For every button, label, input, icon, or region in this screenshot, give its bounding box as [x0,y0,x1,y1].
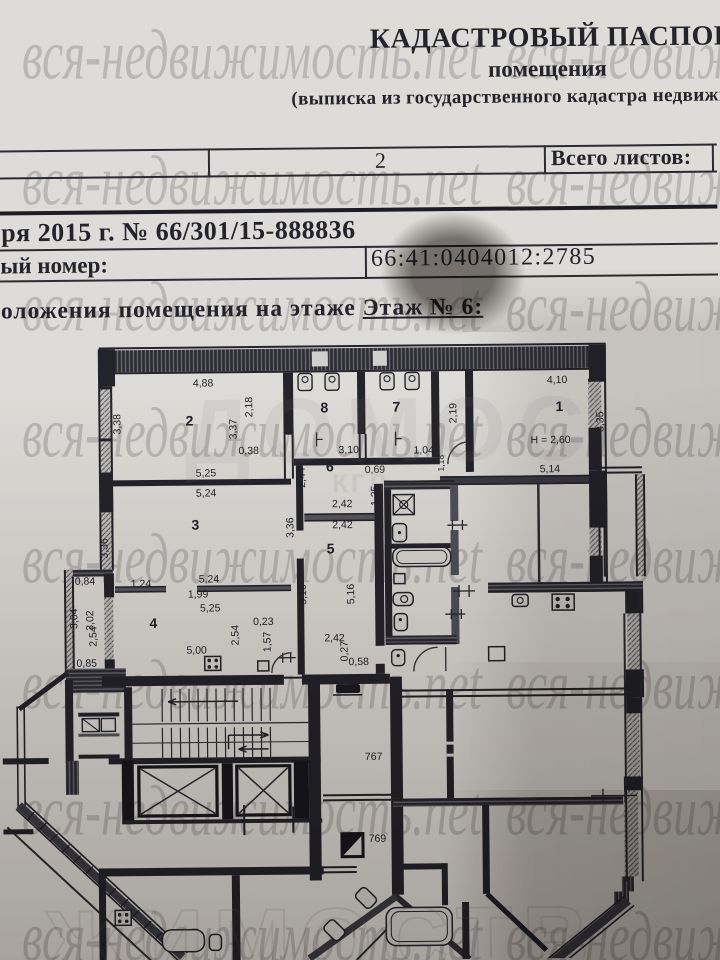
svg-text:3,35: 3,35 [594,411,606,432]
svg-text:5,00: 5,00 [186,644,207,656]
svg-text:2,18: 2,18 [243,397,255,418]
svg-text:0,27: 0,27 [339,641,351,662]
svg-text:3,36: 3,36 [284,517,296,538]
svg-text:2,19: 2,19 [447,403,459,424]
svg-text:3,04: 3,04 [68,608,80,629]
svg-text:0,69: 0,69 [365,464,386,476]
svg-text:5,16: 5,16 [345,584,357,605]
svg-text:3,38: 3,38 [111,414,123,435]
svg-text:0,85: 0,85 [76,658,97,670]
svg-text:Н = 2,60: Н = 2,60 [531,434,571,446]
svg-text:2,44: 2,44 [296,467,308,488]
svg-text:ЖИМОСТВ: ЖИМОСТВ [43,888,599,960]
svg-text:1,04: 1,04 [413,444,434,456]
svg-text:1,18: 1,18 [436,455,446,472]
svg-text:1,57: 1,57 [261,631,273,652]
svg-text:0,84: 0,84 [75,576,96,588]
svg-text:2,54: 2,54 [229,625,241,646]
svg-text:1,24: 1,24 [131,578,152,590]
svg-text:7: 7 [392,399,400,415]
svg-text:3,37: 3,37 [227,419,239,440]
svg-text:5,16: 5,16 [297,584,309,605]
svg-text:6: 6 [326,458,334,474]
svg-text:2,42: 2,42 [332,519,353,531]
svg-text:5,25: 5,25 [200,602,221,614]
svg-text:767: 767 [365,751,383,763]
svg-text:2: 2 [185,413,193,429]
svg-text:3,10: 3,10 [338,444,359,456]
svg-text:5,24: 5,24 [199,573,220,585]
svg-text:4: 4 [149,615,157,631]
svg-text:4,10: 4,10 [547,374,568,386]
svg-text:2,42: 2,42 [332,498,353,510]
svg-text:8: 8 [320,399,328,415]
svg-text:5,24: 5,24 [196,487,217,499]
svg-text:0,23: 0,23 [253,616,274,628]
svg-text:0,58: 0,58 [348,656,369,668]
svg-text:1,99: 1,99 [188,588,209,600]
svg-text:1: 1 [555,398,563,414]
svg-text:769: 769 [369,833,387,845]
svg-text:5,14: 5,14 [540,463,561,475]
svg-text:3: 3 [191,517,199,533]
svg-text:5: 5 [327,540,335,556]
svg-text:1,25: 1,25 [369,485,381,506]
svg-text:3,02: 3,02 [84,610,96,631]
svg-text:4,88: 4,88 [193,377,214,389]
svg-text:3,36: 3,36 [99,538,111,559]
svg-text:5,25: 5,25 [196,467,217,479]
svg-text:0,38: 0,38 [238,445,259,457]
svg-text:ДОМОС: ДОМОС [184,378,597,484]
